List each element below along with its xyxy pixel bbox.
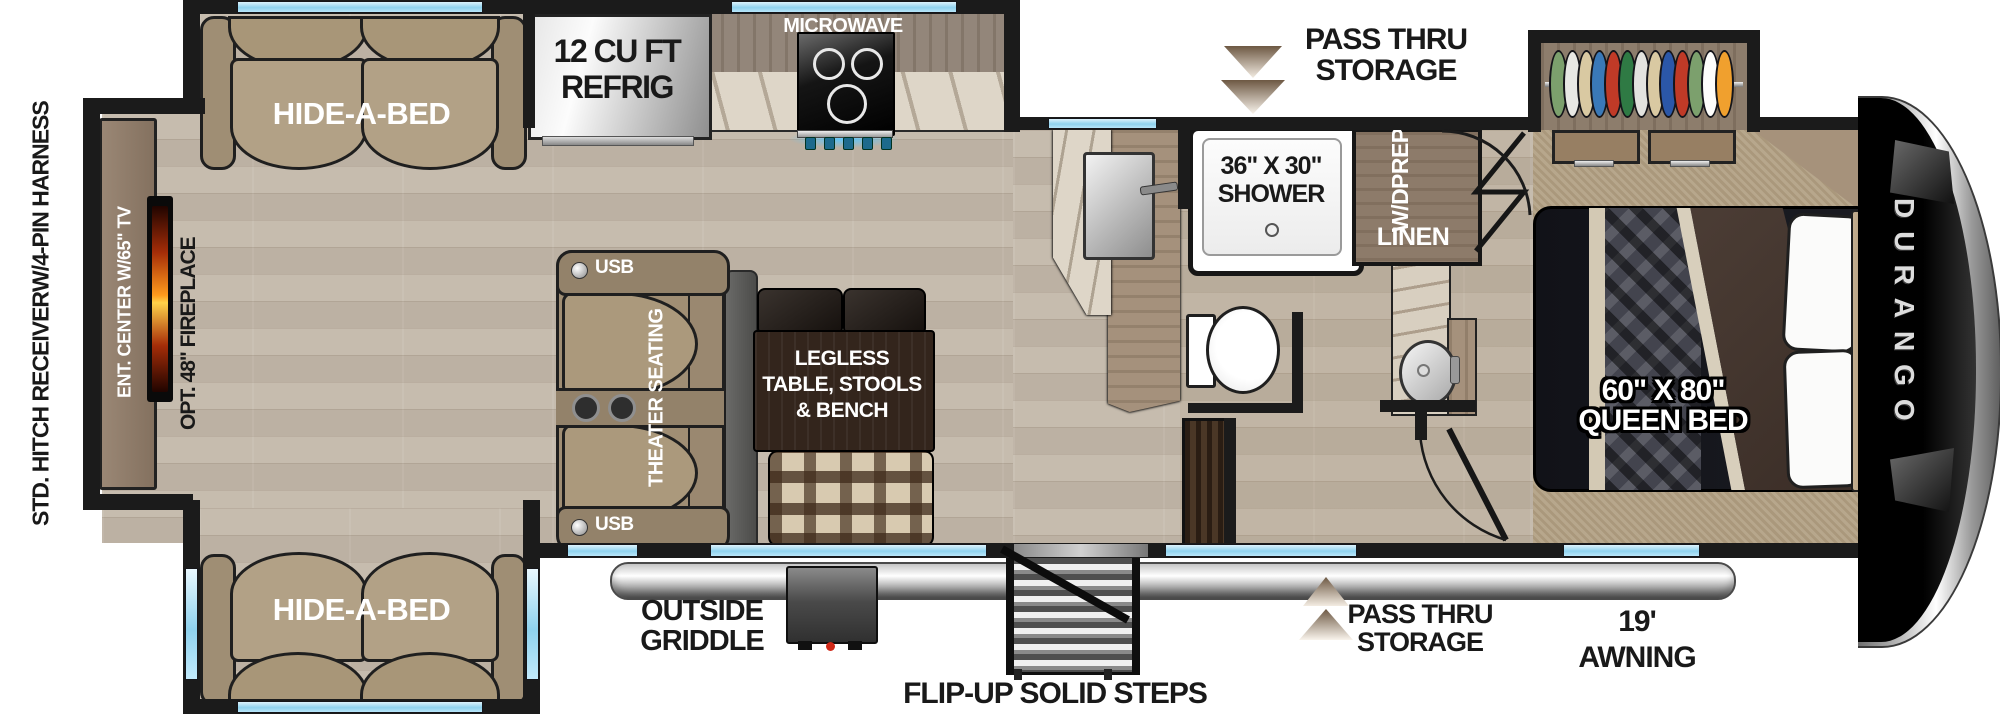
cupholder [572,394,600,422]
hide-a-bed-label: HIDE-A-BED [200,98,523,130]
brand-logo: DURANGO [1888,198,1920,488]
dinette-label-line1: LEGLESS [755,348,929,370]
fireplace-label: OPT. 48" FIREPLACE [170,150,208,518]
dinette-label-line2: TABLE, STOOLS [755,374,929,396]
refrig-label-line1: 12 CU FT [531,35,703,68]
window [237,1,483,13]
wall [1178,117,1190,209]
theater-seating-label: THEATER SEATING [642,256,672,540]
wall [1292,312,1303,413]
outside-griddle-label: OUTSIDE GRIDDLE [626,596,778,656]
usb-label-top: USB [595,258,634,278]
cooktop-stove [797,32,895,136]
dinette-label-line3: & BENCH [755,400,929,422]
theater-armrest-middle [556,388,724,428]
clothing-item [1715,50,1734,118]
usb-port-icon [571,519,588,536]
dinette-stool [757,288,843,336]
refrig-label-line2: REFRIG [531,71,703,104]
window [185,568,198,680]
window [526,568,539,680]
window [237,701,483,713]
bed-stripe [1589,208,1605,490]
ent-center-label: ENT. CENTER W/65" TV [100,130,150,474]
wall [1528,30,1541,132]
microwave-label: MICROWAVE [758,16,928,37]
dinette-stool [843,288,926,336]
hide-a-bed-sofa-bottom: HIDE-A-BED [200,552,523,704]
griddle-knob [826,642,835,651]
wd-prep-linen-closet: W/D PREP LINEN [1352,128,1482,266]
stove-knob [805,137,816,150]
theater-seating: USB USB THEATER SEATING [556,250,726,546]
wall [1224,418,1236,545]
stove-knob [862,137,873,150]
usb-label-bottom: USB [595,515,634,535]
pass-thru-storage-top-label: PASS THRU STORAGE [1295,24,1477,86]
burner [813,48,845,80]
wall [183,0,200,114]
legless-table: LEGLESS TABLE, STOOLS & BENCH [753,330,935,452]
pass-thru-storage-bottom-label: PASS THRU STORAGE [1330,600,1510,656]
shower-label-line2: SHOWER [1193,181,1349,207]
burner [851,48,883,80]
closet-clothes [1549,0,1743,130]
window [567,544,638,557]
half-wall [1188,403,1294,413]
outside-griddle [786,566,878,644]
shower-label-line1: 36" X 30" [1193,153,1349,179]
stove-knob [824,137,835,150]
toilet-bowl [1206,306,1280,394]
bath-sink-drain [1417,364,1430,377]
flip-up-steps [1006,545,1140,675]
awning-label: 19' AWNING [1557,604,1717,676]
wall [1380,400,1476,412]
window [731,1,957,13]
queen-bed: 60" X 80" QUEEN BED [1533,206,1875,492]
nightstand-handle [1670,160,1710,167]
entry-door-opening [1014,544,1148,557]
window [1048,118,1157,129]
pass-thru-arrow-down [1221,80,1285,114]
stove-knob [843,137,854,150]
usb-port-icon [571,262,588,279]
shower-drain [1265,223,1279,237]
kitchen-sink [1083,152,1155,260]
plaid-bench [768,450,934,547]
stove-knob [881,137,892,150]
griddle-foot [798,641,812,650]
refrigerator: 12 CU FT REFRIG [528,14,712,140]
window [1563,544,1700,557]
burner [827,84,867,124]
window [1165,544,1357,557]
wd-prep-label: W/D PREP [1360,134,1442,226]
nightstand [1552,130,1640,164]
wall [83,98,100,510]
wall [1755,117,1872,130]
hide-a-bed-label: HIDE-A-BED [200,594,523,626]
wall [1528,30,1760,43]
cupholder [608,394,636,422]
window [710,544,987,557]
hitch-label: STD. HITCH RECEIVER W/4-PIN HARNESS [4,90,78,538]
queen-bed-label: 60" X 80" QUEEN BED [1533,376,1793,436]
awning-tube [610,562,1736,600]
front-cap: DURANGO [1858,96,2000,648]
shower: 36" X 30" SHOWER [1188,126,1364,276]
hide-a-bed-sofa-top: HIDE-A-BED [200,14,523,169]
linen-label: LINEN [1356,224,1470,250]
wall [523,0,535,128]
fireplace-glow [152,206,168,392]
bath-faucet [1450,356,1460,384]
griddle-foot [848,641,862,650]
wall [1004,0,1020,132]
pass-thru-arrow-down [1224,46,1282,78]
wall [1415,412,1427,440]
nightstand-handle [1574,160,1614,167]
floorplan-canvas: ENT. CENTER W/65" TV OPT. 48" FIREPLACE … [0,0,2000,714]
flip-up-steps-label: FLIP-UP SOLID STEPS [845,678,1265,709]
refrigerator-base [542,136,694,146]
nightstand [1648,130,1736,164]
